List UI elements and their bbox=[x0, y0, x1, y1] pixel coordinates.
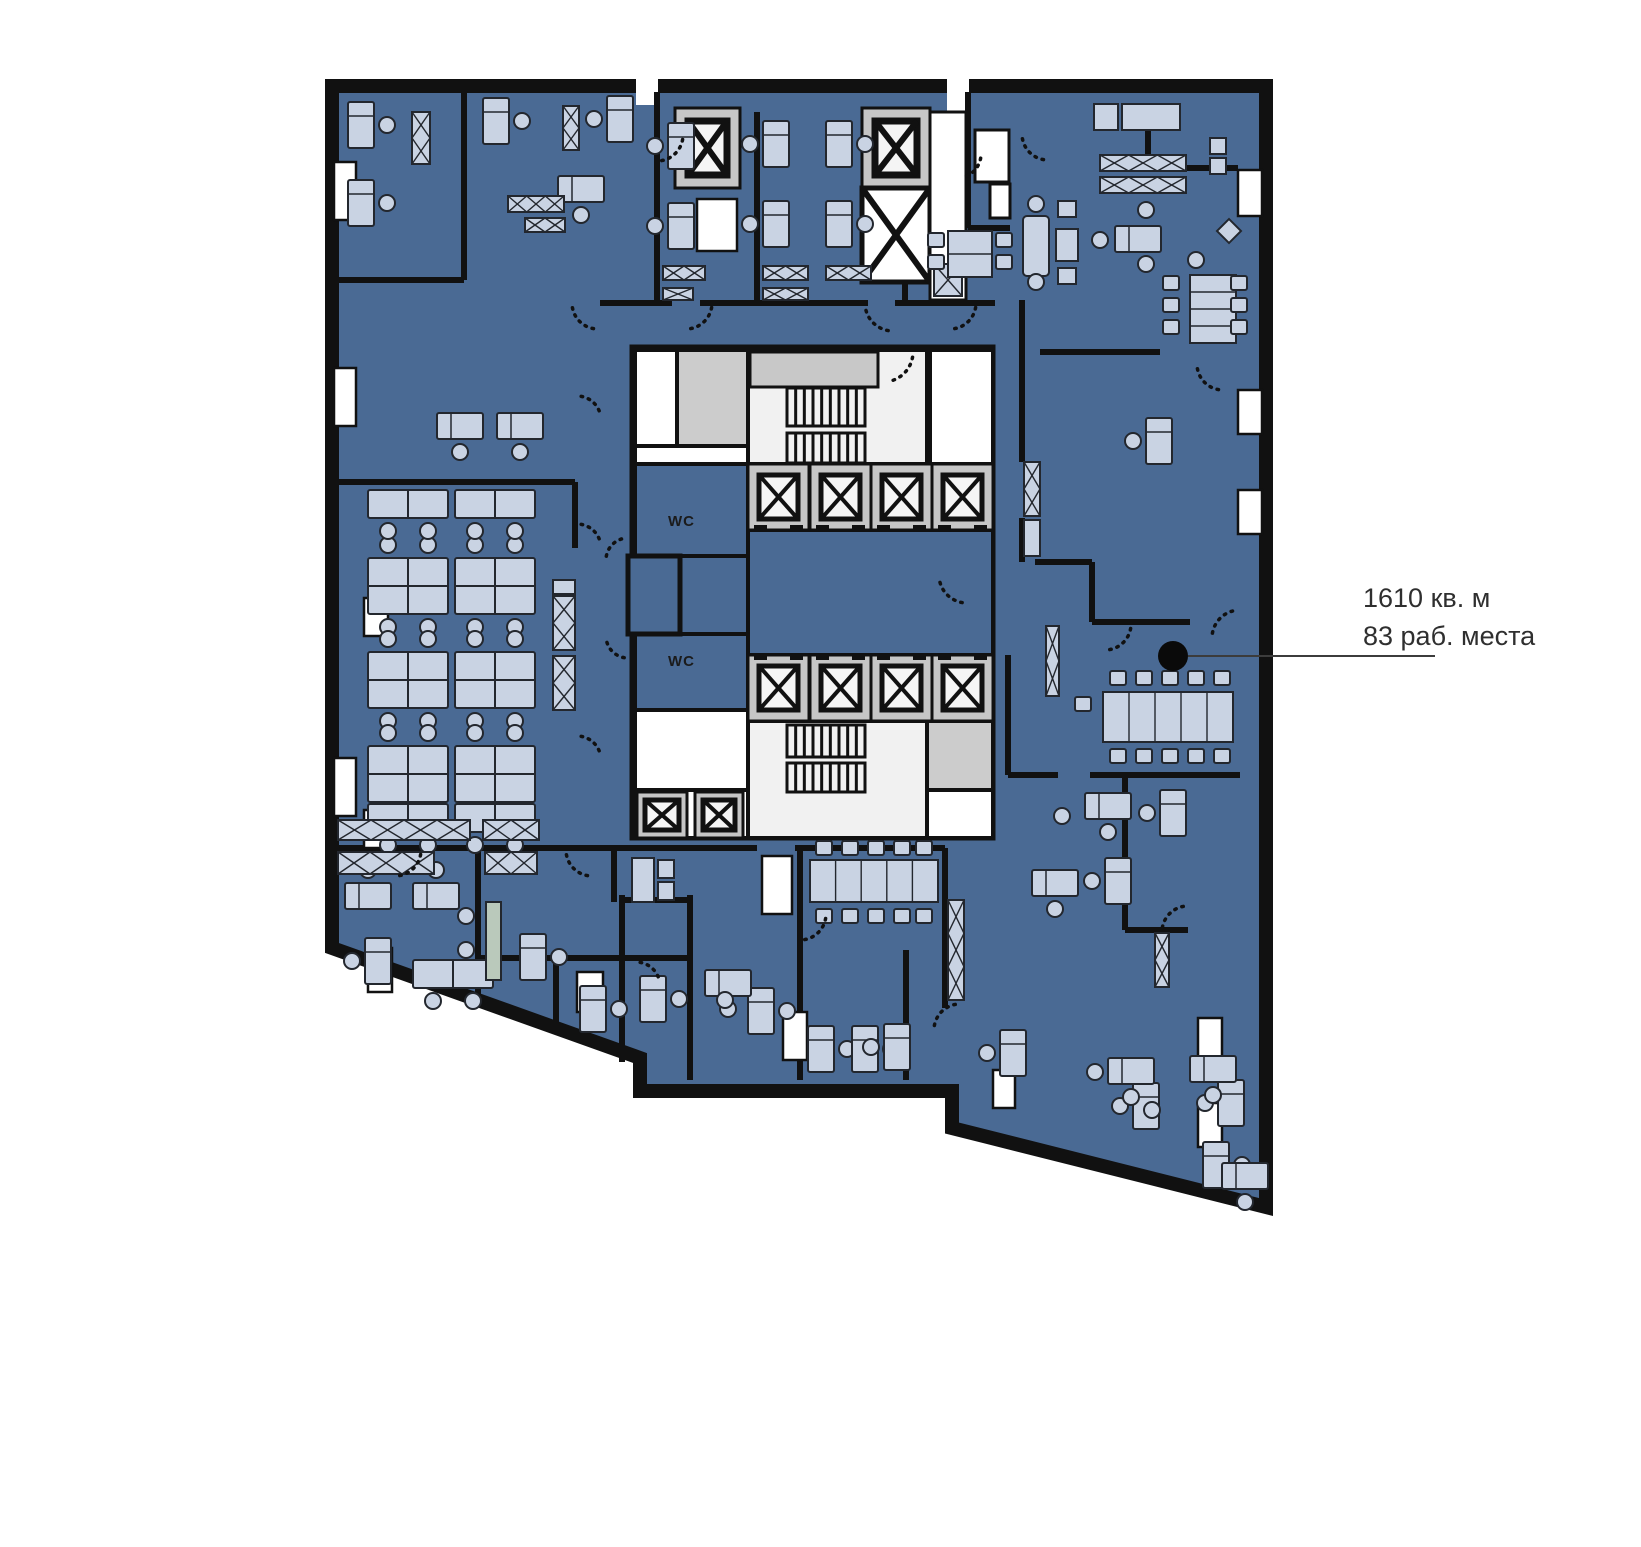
window-opening bbox=[697, 199, 737, 251]
elevator-door-mark bbox=[974, 654, 987, 660]
meeting-chair bbox=[1162, 671, 1178, 685]
desk bbox=[1032, 870, 1078, 896]
area-label: 1610 кв. м bbox=[1363, 583, 1490, 613]
chair bbox=[1237, 1194, 1253, 1210]
shelf-unit bbox=[1046, 626, 1059, 696]
window-opening bbox=[1238, 170, 1262, 216]
core-room bbox=[635, 710, 748, 790]
meeting-table bbox=[810, 860, 938, 902]
desk bbox=[413, 883, 459, 909]
desk bbox=[826, 121, 852, 167]
leader-dot bbox=[1158, 641, 1188, 671]
chair bbox=[1087, 1064, 1103, 1080]
elevator-door-mark bbox=[852, 525, 865, 531]
desk bbox=[580, 986, 606, 1032]
cabinet bbox=[1210, 138, 1226, 154]
chair bbox=[512, 444, 528, 460]
meeting-chair bbox=[996, 233, 1012, 247]
elevator-door-mark bbox=[754, 654, 767, 660]
chair bbox=[1205, 1087, 1221, 1103]
window-opening bbox=[1238, 490, 1262, 534]
stair-upper-flight bbox=[750, 352, 878, 387]
wc-label-2: WC bbox=[668, 653, 695, 670]
meeting-chair bbox=[1231, 298, 1247, 312]
shaft-room bbox=[975, 130, 1009, 182]
chair bbox=[507, 631, 523, 647]
cabinet bbox=[632, 858, 654, 902]
desk bbox=[1218, 1080, 1244, 1126]
desk bbox=[437, 413, 483, 439]
elevator-door-mark bbox=[877, 525, 890, 531]
meeting-chair bbox=[1188, 671, 1204, 685]
desk bbox=[640, 976, 666, 1022]
chair bbox=[458, 908, 474, 924]
meeting-chair bbox=[894, 909, 910, 923]
desk bbox=[607, 96, 633, 142]
chair bbox=[467, 631, 483, 647]
chair bbox=[420, 523, 436, 539]
shelf-unit bbox=[412, 112, 430, 164]
chair bbox=[1054, 808, 1070, 824]
chair bbox=[467, 725, 483, 741]
window-opening bbox=[762, 856, 792, 914]
desk bbox=[763, 201, 789, 247]
meeting-chair bbox=[1110, 749, 1126, 763]
chair bbox=[573, 207, 589, 223]
shelf-unit bbox=[663, 266, 705, 280]
chair bbox=[425, 993, 441, 1009]
chair bbox=[647, 138, 663, 154]
elevator-door-mark bbox=[816, 654, 829, 660]
chair bbox=[420, 725, 436, 741]
core-room bbox=[635, 350, 677, 446]
cabinet bbox=[658, 860, 674, 878]
core-blue-room bbox=[635, 634, 748, 710]
meeting-chair bbox=[928, 233, 944, 247]
shaft-room bbox=[990, 184, 1010, 218]
meeting-chair bbox=[1162, 749, 1178, 763]
meeting-chair bbox=[1136, 671, 1152, 685]
window-opening bbox=[334, 368, 356, 426]
desk bbox=[365, 938, 391, 984]
lounge-seat bbox=[1058, 201, 1076, 217]
chair bbox=[647, 218, 663, 234]
chair bbox=[551, 949, 567, 965]
round-table bbox=[1028, 274, 1044, 290]
core-blue-room bbox=[635, 464, 748, 556]
shelf-unit bbox=[763, 288, 808, 300]
chair bbox=[1123, 1089, 1139, 1105]
lounge-seat bbox=[1056, 229, 1078, 261]
workplaces-label: 83 раб. места bbox=[1363, 621, 1536, 651]
desk bbox=[1160, 790, 1186, 836]
shelf-unit bbox=[553, 596, 575, 650]
stair-flight bbox=[787, 725, 865, 757]
desk bbox=[808, 1026, 834, 1072]
cabinet bbox=[658, 882, 674, 900]
desk bbox=[1085, 793, 1131, 819]
chair bbox=[1139, 805, 1155, 821]
desk bbox=[1105, 858, 1131, 904]
desk bbox=[826, 201, 852, 247]
core-room bbox=[930, 350, 993, 464]
chair bbox=[1125, 433, 1141, 449]
shelf-unit bbox=[763, 266, 808, 280]
shelf-unit bbox=[485, 852, 537, 874]
meeting-chair bbox=[1136, 749, 1152, 763]
desk bbox=[1146, 418, 1172, 464]
chair bbox=[458, 942, 474, 958]
wc-label-1: WC bbox=[668, 513, 695, 530]
meeting-chair bbox=[1231, 320, 1247, 334]
core-blue-room bbox=[748, 530, 993, 655]
desk bbox=[1108, 1058, 1154, 1084]
stair-flight bbox=[787, 433, 865, 463]
chair bbox=[586, 111, 602, 127]
chair bbox=[742, 136, 758, 152]
meeting-chair bbox=[1110, 671, 1126, 685]
cabinet bbox=[553, 580, 575, 594]
chair bbox=[779, 1003, 795, 1019]
meeting-chair bbox=[1214, 671, 1230, 685]
meeting-chair bbox=[842, 841, 858, 855]
lounge-seat bbox=[1058, 268, 1076, 284]
desk bbox=[348, 102, 374, 148]
chair bbox=[1084, 873, 1100, 889]
core-room bbox=[635, 446, 748, 464]
chair bbox=[380, 523, 396, 539]
chair bbox=[979, 1045, 995, 1061]
cabinet bbox=[1024, 520, 1040, 556]
chair bbox=[379, 117, 395, 133]
chair bbox=[1138, 256, 1154, 272]
desk bbox=[497, 413, 543, 439]
floor-plan: WC WC 1610 кв. м 83 раб. места bbox=[0, 0, 1641, 1547]
desk bbox=[1115, 226, 1161, 252]
chair bbox=[857, 136, 873, 152]
elevator-door-mark bbox=[754, 525, 767, 531]
meeting-table bbox=[1103, 692, 1233, 742]
meeting-chair bbox=[842, 909, 858, 923]
locker-cabinet bbox=[486, 902, 501, 980]
chair bbox=[380, 631, 396, 647]
meeting-chair bbox=[816, 841, 832, 855]
meeting-chair bbox=[1214, 749, 1230, 763]
chair bbox=[514, 113, 530, 129]
meeting-chair bbox=[916, 909, 932, 923]
elevator-door-mark bbox=[816, 525, 829, 531]
core-room bbox=[927, 790, 993, 838]
chair bbox=[1144, 1102, 1160, 1118]
chair bbox=[467, 523, 483, 539]
elevator-door-mark bbox=[938, 654, 951, 660]
round-table bbox=[1028, 196, 1044, 212]
meeting-chair bbox=[1075, 697, 1091, 711]
meeting-chair bbox=[916, 841, 932, 855]
meeting-chair bbox=[868, 909, 884, 923]
shelf-unit bbox=[563, 106, 579, 150]
desk bbox=[1222, 1163, 1268, 1189]
shelf-unit bbox=[1024, 462, 1040, 516]
cabinet bbox=[1122, 104, 1180, 130]
chair bbox=[379, 195, 395, 211]
stair-flight bbox=[787, 763, 865, 792]
elevator-door-mark bbox=[974, 525, 987, 531]
chair bbox=[671, 991, 687, 1007]
chair bbox=[420, 631, 436, 647]
elevator-door-mark bbox=[913, 654, 926, 660]
chair bbox=[507, 725, 523, 741]
service-room bbox=[677, 350, 748, 446]
desk bbox=[668, 203, 694, 249]
chair bbox=[452, 444, 468, 460]
meeting-chair bbox=[1163, 298, 1179, 312]
sofa bbox=[1023, 216, 1049, 276]
window-opening bbox=[334, 758, 356, 816]
elevator-door-mark bbox=[790, 654, 803, 660]
chair bbox=[1092, 232, 1108, 248]
chair bbox=[507, 523, 523, 539]
elevator-door-mark bbox=[790, 525, 803, 531]
chair bbox=[380, 725, 396, 741]
desk bbox=[483, 98, 509, 144]
chair bbox=[1138, 202, 1154, 218]
cabinet bbox=[1094, 104, 1118, 130]
chair bbox=[344, 953, 360, 969]
elevator-door-mark bbox=[877, 654, 890, 660]
chair bbox=[1188, 252, 1204, 268]
shelf-unit bbox=[826, 266, 871, 280]
shelf-unit bbox=[338, 820, 470, 840]
stair-flight bbox=[787, 388, 865, 426]
desk bbox=[348, 180, 374, 226]
chair bbox=[465, 993, 481, 1009]
elevator-door-mark bbox=[938, 525, 951, 531]
chair bbox=[742, 216, 758, 232]
elevator-door-mark bbox=[852, 654, 865, 660]
chair bbox=[863, 1039, 879, 1055]
chair bbox=[611, 1001, 627, 1017]
chair bbox=[1100, 824, 1116, 840]
cabinet bbox=[1210, 158, 1226, 174]
desk bbox=[520, 934, 546, 980]
meeting-chair bbox=[1231, 276, 1247, 290]
window-opening bbox=[1238, 390, 1262, 434]
desk bbox=[884, 1024, 910, 1070]
elevator-door-mark bbox=[913, 525, 926, 531]
wc-vestibule bbox=[628, 556, 680, 634]
desk bbox=[763, 121, 789, 167]
service-room bbox=[927, 721, 993, 790]
desk bbox=[1000, 1030, 1026, 1076]
meeting-chair bbox=[1188, 749, 1204, 763]
shelf-unit bbox=[525, 218, 565, 232]
meeting-chair bbox=[894, 841, 910, 855]
meeting-chair bbox=[1163, 276, 1179, 290]
chair bbox=[717, 992, 733, 1008]
meeting-chair bbox=[868, 841, 884, 855]
chair bbox=[1047, 901, 1063, 917]
desk bbox=[1190, 1056, 1236, 1082]
shelf-unit bbox=[483, 820, 539, 840]
shelf-unit bbox=[553, 656, 575, 710]
desk bbox=[345, 883, 391, 909]
shelf-unit bbox=[1155, 933, 1169, 987]
chair bbox=[857, 216, 873, 232]
meeting-chair bbox=[928, 255, 944, 269]
meeting-chair bbox=[1163, 320, 1179, 334]
floor-plan-page: WC WC 1610 кв. м 83 раб. места bbox=[0, 0, 1641, 1547]
meeting-chair bbox=[996, 255, 1012, 269]
